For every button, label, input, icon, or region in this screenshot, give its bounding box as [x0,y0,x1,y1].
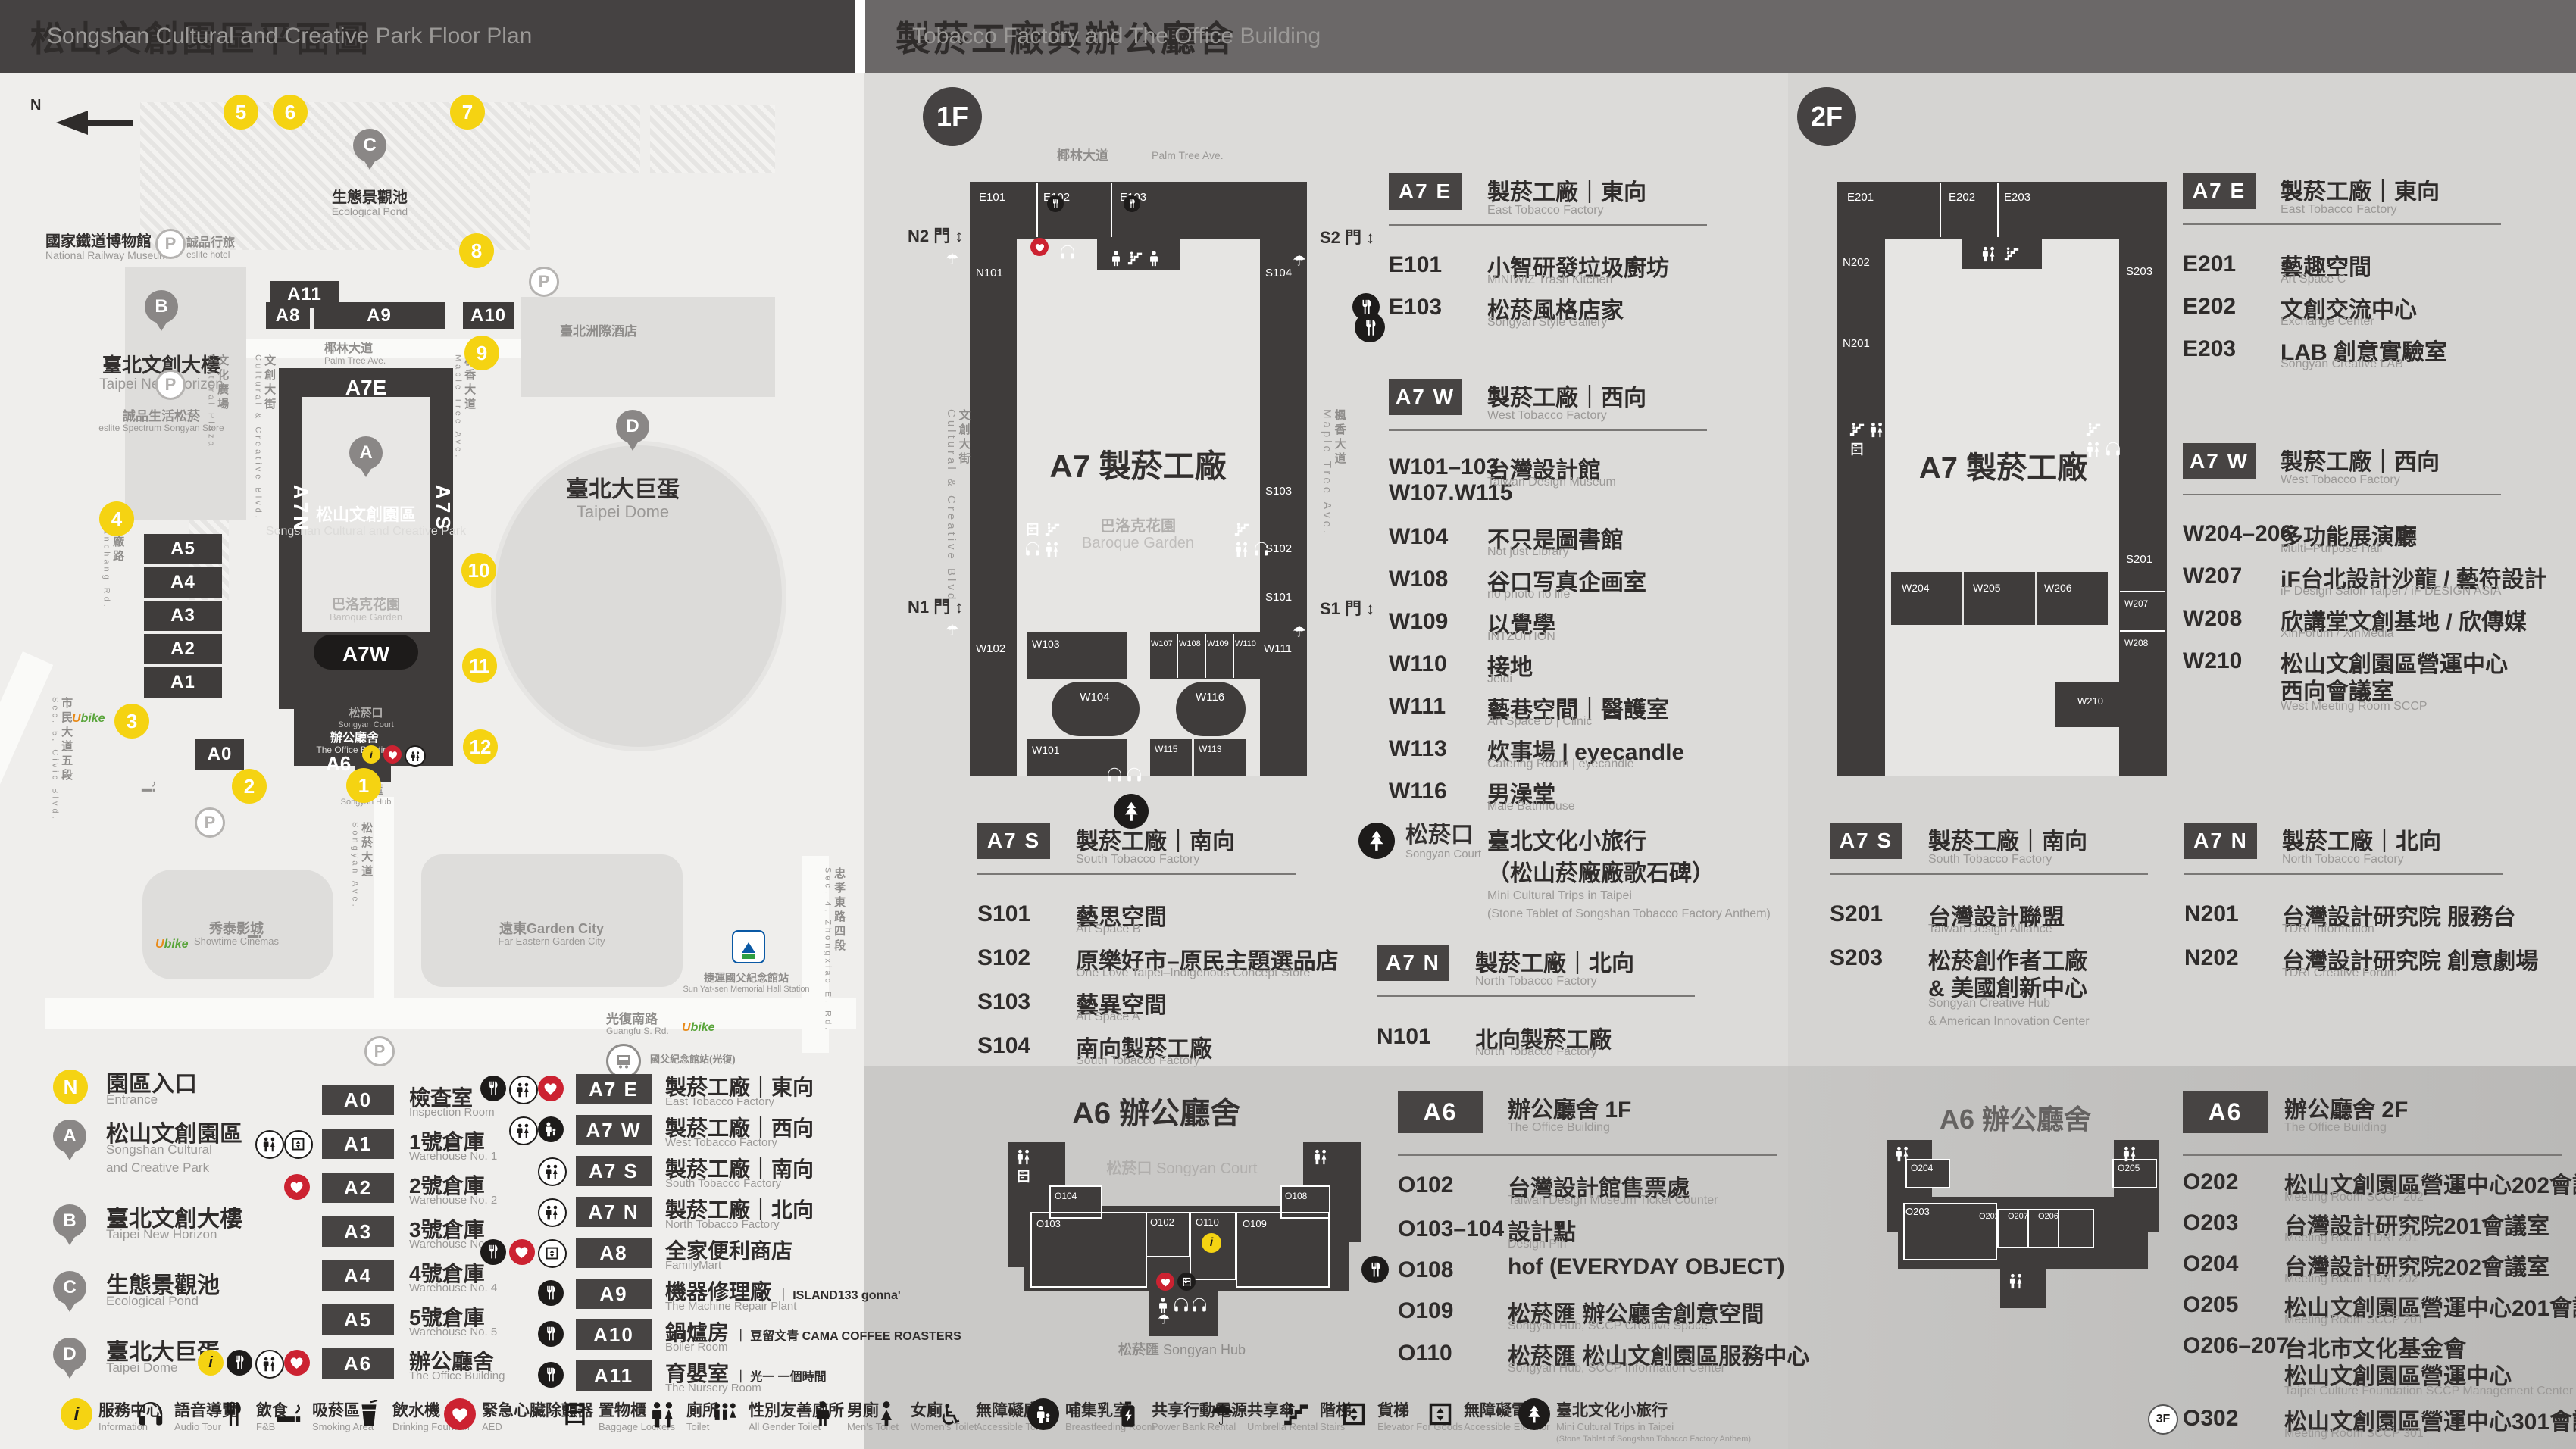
f1-court-desc-zh2: （松山菸廠廠歌石碑） [1487,854,1715,888]
strip-male-icon [809,1400,836,1431]
o-2f-row-O202-name-en: Meeting Room SCCP 202 [2284,1191,2424,1204]
strip-treec-en: Mini Cultural Trips in Taipei [1556,1421,1674,1432]
f2-a7w-row-W207-code[interactable]: W207 [2183,564,2242,589]
f2-a7n-divider [2184,873,2503,875]
o-2f-row-O302-name-en: Meeting Room SCCP 301 [2284,1427,2424,1441]
map-label-捷運國父紀念館站: 捷運國父紀念館站Sun Yat-sen Memorial Hall Statio… [683,973,809,994]
plan1f-room-N101[interactable]: N101 [976,267,1003,279]
map-pin-C[interactable]: C [353,129,386,162]
office1f-room-O108[interactable]: O108 [1285,1191,1307,1201]
legend-col2-A7 N-badge: A7 N [576,1197,652,1227]
office2f-room-O205[interactable]: O205 [2118,1163,2140,1173]
f1-a7w-divider [1389,429,1707,431]
o-1f-title-zh: 辦公廳舍 1F [1508,1091,1631,1124]
office1f-room-O109[interactable]: O109 [1243,1218,1267,1229]
col2-A8-icon-lift [538,1239,567,1268]
songyan-ave-road [374,797,394,1005]
f1-a7e-row-E103-name-en: Songyan Style Gallery [1487,316,1607,329]
f2-a7s-row-S203-name-en: Songyan Creative Hub [1928,997,2050,1010]
map-label-文化廣場: 文化廣場Cultural Plaza [206,354,228,448]
map-label-A6: A6 [326,753,351,775]
legend-col1-A6-en: The Office Building [409,1369,505,1382]
plan2f-room-S203[interactable]: S203 [2126,265,2152,278]
map-label-臺北大巨蛋: 臺北大巨蛋Taipei Dome [566,477,680,521]
legend-place-A-en: Songshan Cultural [106,1142,212,1157]
col2-A7 W-icon-personsOut [509,1116,538,1145]
f1-court-desc-zh1: 臺北文化小旅行 [1487,823,1646,856]
plan2f-room-W205[interactable]: W205 [1973,582,2001,594]
plan-picto-p2-17 [2085,441,2102,457]
map-entrance-7[interactable]: 7 [450,95,485,130]
o-2f-row-O206–207-code[interactable]: O206–207 [2183,1333,2289,1359]
o-1f-badge: A6 [1398,1091,1483,1133]
plan-picto-stairs-8 [1233,521,1250,538]
plan2f-room-W204[interactable]: W204 [1902,582,1930,594]
o-2f-row-O302-code[interactable]: O302 [2183,1406,2238,1432]
map-label-楓香大道: 楓香大道Maple Tree Ave. [453,354,475,460]
plan1f-e102-fork-icon [1047,195,1064,212]
strip-cup-zh: 飲水機 [392,1398,440,1421]
f1-a7w-row-W113-code[interactable]: W113 [1389,736,1447,762]
plan1f-room-S101[interactable]: S101 [1265,591,1292,604]
legend-col1-A2-badge: A2 [322,1173,394,1203]
header-seam [855,0,865,73]
f1-a7e-row-E103-code[interactable]: E103 [1389,295,1442,320]
plan1f-aed-icon [1030,238,1049,256]
f2-a7e-row-E203-name-en: Songyan Creative LAB [2281,358,2403,371]
map-building-A8[interactable]: A8 [266,302,310,329]
f1-a7s-row-S102-code[interactable]: S102 [977,945,1030,971]
f1-a7w-row-W110-code[interactable]: W110 [1389,651,1447,677]
plan-picto-stairs-1 [1127,250,1143,267]
office2f-room-O202[interactable]: O202 [1979,1212,1999,1221]
map-building-A9[interactable]: A9 [314,302,445,329]
map-label-A7S: A7S [432,485,454,532]
plan-picto-stairs-16 [2085,421,2102,438]
o-2f-row-O203-code[interactable]: O203 [2183,1210,2238,1236]
plan2f-room-E201[interactable]: E201 [1847,191,1874,204]
strip-allgender-icon [711,1400,739,1432]
compass-tail [88,120,133,126]
col1-A1-icon-personsOut [255,1130,284,1159]
plan1f-title: A7 製菸工廠 [1049,448,1226,484]
f1-a7n-divider [1377,995,1695,997]
plan-picto-p2-21 [1015,1148,1032,1165]
map-building-A3[interactable]: A3 [144,601,222,631]
o-1f-row-O110-name-en: Songyan Hub, SCCP Information Center [1508,1362,1725,1376]
parking-icon-2: P [155,370,186,400]
f1-a7w-row-W101–103-code[interactable]: W101–103 [1389,454,1499,480]
legend-pin-C: C [53,1271,86,1304]
col1-A6-icon-forkc [227,1350,252,1376]
city-block-ne1 [530,105,640,173]
map-entrance-10[interactable]: 10 [461,553,496,588]
legend-place-D-en: Taipei Dome [106,1360,178,1376]
plan1f-street-left: 文創大街Cultural & Creative Blvd. [944,409,970,608]
f2-a7n-row-N202-name-en: TDRI Creative Forum [2282,967,2397,980]
strip-treec-icon [1518,1398,1550,1430]
o-1f-row-O110-code[interactable]: O110 [1398,1341,1452,1366]
f1-a7n-row-N101-code[interactable]: N101 [1377,1024,1431,1050]
f2-a7s-divider [1830,873,2148,875]
o-1f-row-O108-name-zh[interactable]: hof (EVERYDAY OBJECT) [1508,1254,1785,1280]
office1f-room-O104[interactable]: O104 [1055,1191,1077,1201]
plan1f-room-W107[interactable]: W107 [1151,639,1173,648]
parking-icon-1: P [155,229,186,259]
right-header-title-en: Tobacco Factory and The Office Building [912,23,1321,49]
office2f-room-O207[interactable]: O207 [2008,1212,2028,1221]
f2-a7e-title-zh: 製菸工廠｜東向 [2281,173,2440,206]
f2-a7s-row-S201-name-en: Taiwan Design Alliance [1928,923,2052,936]
f1-a7w-row-W111-code[interactable]: W111 [1389,694,1446,720]
plan-picto-p2-7 [1044,541,1061,557]
o-2f-row-O202-code[interactable]: O202 [2183,1170,2238,1195]
map-label-A7W: A7W [342,642,389,666]
office1f-room-O110[interactable]: O110 [1196,1216,1219,1228]
plan-gate-N2 門: N2 門 ↕ [908,227,963,246]
f1-a7s-title-zh: 製菸工廠｜南向 [1076,823,1235,856]
o-2f-row-O204-code[interactable]: O204 [2183,1251,2238,1277]
f2-a7n-row-N201-code[interactable]: N201 [2184,901,2239,927]
map-label-生態景觀池: 生態景觀池Ecological Pond [332,189,408,218]
plan-picto-headset-10 [1253,541,1270,557]
f2-a7s-row-S203-code[interactable]: S203 [1830,945,1883,971]
map-entrance-11[interactable]: 11 [462,648,497,683]
strip-locker-zh: 置物櫃 [599,1398,646,1421]
legend-col1-A4-badge: A4 [322,1260,394,1291]
legend-col1-A6-badge: A6 [322,1348,394,1379]
legend-place-C-en: Ecological Pond [106,1294,199,1309]
f2-a7w-row-W208-name-en: XinForum / XinMedia [2281,627,2393,641]
o-2f-divider [2183,1154,2562,1156]
left-header-title-en: Songshan Cultural and Creative Park Floo… [47,23,532,49]
office2f-room-O204[interactable]: O204 [1911,1163,1933,1173]
f2-a7w-title-en: West Tobacco Factory [2281,473,2400,487]
legend-col2-A8-en: FamilyMart [665,1259,721,1272]
map-a6-aed-icon [383,745,402,764]
f1-a7w-row-W104-code[interactable]: W104 [1389,524,1448,550]
f1-court-desc-en1: Mini Cultural Trips in Taipei [1487,889,1632,903]
f2-a7n-title-en: North Tobacco Factory [2282,853,2404,867]
ubike-icon-1: Ubike [72,712,105,726]
plan-picto-locker-4 [1024,521,1041,538]
strip-treec-zh: 臺北文化小旅行 [1556,1398,1668,1421]
plan-picto-headset-25 [1173,1297,1190,1313]
f2-a7w-row-W210-name-en: West Meeting Room SCCP [2281,700,2428,714]
map-label-A7N: A7N [289,485,311,533]
legend-pin-B: B [53,1204,86,1238]
f1-a7w-row-W108-name-en: no photo no life [1487,588,1570,601]
plan-picto-locker-22 [1015,1168,1032,1185]
plan-picto-headset-26 [1191,1297,1208,1313]
map-label-國家鐵道博物館: 國家鐵道博物館National Railway Museum [45,233,168,262]
legend-col1-A3-badge: A3 [322,1216,394,1247]
f2-a7s-row-S201-code[interactable]: S201 [1830,901,1883,927]
f1-a7w-row-W108-code[interactable]: W108 [1389,567,1448,592]
col2-A7 N-icon-personsOut [538,1198,567,1227]
plan1f-room-W102[interactable]: W102 [976,642,1005,655]
plan-picto-stairs-5 [1044,521,1061,538]
hotel-block [521,297,775,397]
strip-lift-zh: 貨梯 [1377,1398,1409,1421]
map-pin-B[interactable]: B [145,290,178,323]
o-1f-row-O108-code[interactable]: O108 [1398,1257,1453,1283]
plan-picto-p1-24 [1155,1297,1171,1313]
plan-picto-p2-29 [2008,1273,2024,1289]
f1-a7s-divider [977,873,1296,875]
office1f-room-O103[interactable]: O103 [1036,1218,1061,1229]
o-1f-row-O108-icon [1361,1256,1389,1283]
map-label-臺北洲際酒店: 臺北洲際酒店 [560,324,637,339]
compass-north-label: N [30,97,41,114]
map-label-光復南路: 光復南路Guangfu S. Rd. [606,1012,669,1036]
map-building-A1[interactable]: A1 [144,667,222,698]
f1-a7w-row-W109-code[interactable]: W109 [1389,609,1448,635]
office1f-room-O102[interactable]: O102 [1150,1216,1174,1228]
strip-aed-en: AED [482,1421,502,1432]
legend-col1-A5-en: Warehouse No. 5 [409,1326,497,1338]
f1-a7s-row-S104-code[interactable]: S104 [977,1033,1030,1059]
col2-A8-icon-forkc [480,1239,506,1265]
map-a6-toilet-icon [405,745,426,767]
plan1f-room-W101[interactable]: W101 [1032,744,1060,756]
legend-col1-A0-badge: A0 [322,1085,394,1115]
plan2f-title: A7 製菸工廠 [1919,451,2087,486]
gate-umbrella-icon-4: ☂ [1293,623,1306,642]
f1-a7e-row-E103-icon [1352,293,1380,320]
map-entrance-12[interactable]: 12 [463,729,498,764]
plan2f-room-N201[interactable]: N201 [1843,337,1870,350]
legend-col2-A10-en: Boiler Room [665,1341,728,1354]
f1-a7e-title-en: East Tobacco Factory [1487,204,1604,217]
map-pin-A[interactable]: A [349,436,383,470]
legend-col1-A4-en: Warehouse No. 4 [409,1282,497,1294]
plan1f-room-W116[interactable]: W116 [1196,691,1224,704]
col1-A6-icon-personsOut [255,1350,284,1379]
f2-a7w-row-W204–206-name-en: Multi–Purpose Hall [2281,542,2382,556]
f2-a7n-title-zh: 製菸工廠｜北向 [2282,823,2441,856]
f1-a7w-row-W116-name-en: Male Bathhouse [1487,800,1575,814]
o-2f-row-O205-code[interactable]: O205 [2183,1292,2238,1318]
f2-a7e-row-E201-code[interactable]: E201 [2183,251,2236,277]
map-label-誠品生活松菸: 誠品生活松菸eslite Spectrum Songyan Store [98,409,224,433]
office1f-umbrella-icon: ☂ [1158,1312,1170,1328]
strip-stairs-icon [1282,1400,1311,1432]
strip-fork-en: F&B [256,1421,275,1432]
map-label-椰林大道: 椰林大道Palm Tree Ave. [324,342,386,366]
map-a6-info-icon: i [362,745,380,764]
f1-court-title: 松菸口Songyan Court [1405,823,1481,860]
plan-picto-headset-12 [1126,767,1143,783]
plan1f-room-W115[interactable]: W115 [1155,744,1177,754]
legend-place-N-en: Entrance [106,1092,158,1107]
map-pin-D[interactable]: D [616,410,649,443]
floor1-badge: 1F [923,87,982,146]
guangfu-road [45,998,856,1029]
plan2f-room-W208[interactable]: W208 [2124,638,2148,648]
strip-babyc-icon [1027,1398,1059,1430]
f1-a7s-badge: A7 S [977,823,1050,859]
o-1f-row-O109-code[interactable]: O109 [1398,1298,1453,1324]
f1-a7w-row-W116-code[interactable]: W116 [1389,779,1447,804]
map-entrance-9[interactable]: 9 [464,336,499,370]
strip-cup-icon [355,1400,383,1432]
f2-a7s-title-en: South Tobacco Factory [1928,853,2052,867]
f2-a7s-badge: A7 S [1830,823,1902,859]
f2-a7e-row-E203-code[interactable]: E203 [2183,336,2236,362]
plan1f-room-S104[interactable]: S104 [1265,267,1292,279]
f1-a7s-row-S103-code[interactable]: S103 [977,989,1030,1015]
plan-picto-p2-9 [1233,541,1250,557]
map-entrance-5[interactable]: 5 [224,95,258,130]
f1-a7s-row-S101-code[interactable]: S101 [977,901,1030,927]
col2-A7 E-icon-aed [538,1076,564,1101]
map-entrance-4[interactable]: 4 [99,501,134,536]
legend-col1-A0-en: Inspection Room [409,1106,495,1119]
plan2f-room-W210[interactable]: W210 [2077,695,2103,707]
map-entrance-1[interactable]: 1 [346,768,381,803]
f1-a7e-title-zh: 製菸工廠｜東向 [1487,173,1646,207]
col2-A8-icon-aed [509,1239,535,1265]
f1-a7e-badge: A7 E [1389,173,1462,210]
plan2f-room-S201[interactable]: S201 [2126,553,2152,566]
col2-A7 W-icon-baby [538,1116,564,1142]
legend-col2-A7 S-en: South Tobacco Factory [665,1177,781,1190]
col2-A10-icon-forkc [538,1321,564,1347]
f2-a7w-row-W210-code[interactable]: W210 [2183,648,2242,674]
plan1f-room-W104[interactable]: W104 [1080,691,1109,704]
f2-a7w-row-W207-name-en: iF Design Salon Taipei / iF DESIGN ASIA [2281,585,2501,598]
plan-picto-headset-18 [2105,441,2121,457]
col2-A7 S-icon-personsOut [538,1157,567,1186]
f1-a7e-row-E101-code[interactable]: E101 [1389,252,1442,278]
office1f-aed-icon [1156,1273,1174,1291]
o-2f-row-O206–207-name-en: Taipei Culture Foundation SCCP Managemen… [2284,1385,2573,1398]
plan-picto-p2-23 [1312,1148,1329,1165]
plan1f-room-W113[interactable]: W113 [1199,744,1221,754]
city-block-ne2 [650,105,775,173]
f2-a7s-title-zh: 製菸工廠｜南向 [1928,823,2087,856]
legend-col2-A7 N-en: North Tobacco Factory [665,1218,780,1231]
ubike-icon-3: Ubike [682,1021,715,1035]
legend-pin-A: A [53,1120,86,1153]
f2-a7e-row-E202-code[interactable]: E202 [2183,294,2236,320]
plan2f-room-W206[interactable]: W206 [2044,582,2072,594]
strip-female-icon [873,1400,900,1431]
plan1f-room-W110[interactable]: W110 [1235,639,1256,648]
floor2-badge: 2F [1797,87,1856,146]
map-entrance-2[interactable]: 2 [232,769,267,804]
strip-lift-icon [1340,1400,1368,1432]
map-entrance-8[interactable]: 8 [459,233,494,268]
plan1f-room-W108[interactable]: W108 [1179,639,1201,648]
strip-locker-icon [561,1400,589,1432]
map-label-誠品行旅: 誠品行旅eslite hotel [186,236,235,260]
o-2f-row-O203-name-en: Meeting Room TDRI 201 [2284,1232,2418,1245]
f1-a7w-row-W104-name-en: Not just Library [1487,545,1569,559]
plan2f-room-E202[interactable]: E202 [1949,191,1975,204]
f1-a7w-title-en: West Tobacco Factory [1487,409,1607,423]
map-label-A7E: A7E [345,376,386,399]
plan-picto-stairs-13 [1849,421,1865,438]
legend-col2-A11-badge: A11 [576,1360,652,1391]
plan-picto-p2-14 [1868,421,1885,438]
map-building-A10[interactable]: A10 [463,302,514,329]
plan1f-room-E101[interactable]: E101 [979,191,1005,204]
f2-a7n-badge: A7 N [2184,823,2257,859]
map-label-松菸大道: 松菸大道Songyan Ave. [350,822,372,910]
map-building-A2[interactable]: A2 [144,634,222,664]
plan2f-room-E203[interactable]: E203 [2004,191,2030,204]
map-entrance-3[interactable]: 3 [114,704,149,739]
legend-col2-A7 E-badge: A7 E [576,1074,652,1104]
office2f-plan-title: A6 辦公廳舍 [1940,1104,2091,1135]
f1-a7n-title-en: North Tobacco Factory [1475,975,1597,988]
o-1f-row-O102-name-en: Taiwan Design Museum Ticket Counter [1508,1194,1718,1207]
legend-entrance-badge: N [53,1070,88,1104]
o-2f-row-O205-name-en: Meeting Room SCCP 201 [2284,1313,2424,1327]
map-building-A0[interactable]: A0 [195,739,244,770]
gate-umbrella-icon-3: ☂ [946,621,959,640]
map-building-A5[interactable]: A5 [144,534,222,564]
plan1f-e103-fork-icon [1124,195,1140,212]
map-label-遠東Garden City: 遠東Garden CityFar Eastern Garden City [499,921,605,948]
plan1f-room-W109[interactable]: W109 [1207,639,1229,648]
f1-a7w-badge: A7 W [1389,379,1462,415]
map-label-國父紀念館站(光復): 國父紀念館站(光復) [650,1054,736,1066]
f2-a7w-row-W204–206-code[interactable]: W204–206 [2183,521,2293,547]
plan1f-garden: 巴洛克花園Baroque Garden [1082,518,1194,552]
strip-info-icon: i [61,1398,92,1430]
plan2f-room-N202[interactable]: N202 [1843,256,1870,269]
o-1f-row-O103–104-code[interactable]: O103–104 [1398,1216,1504,1242]
col1-A2-icon-aed [284,1174,310,1200]
plan1f-room-W111[interactable]: W111 [1264,642,1292,655]
f2-a7n-row-N202-code[interactable]: N202 [2184,945,2239,971]
strip-power-icon [1114,1400,1143,1432]
map-entrance-6[interactable]: 6 [273,95,308,130]
office2f-room-O206[interactable]: O206 [2038,1212,2059,1221]
legend-col2-A7 E-en: East Tobacco Factory [665,1095,774,1108]
f1-a7s-row-S103-name-en: Art Space A [1076,1010,1140,1024]
legend-col2-A7 W-en: West Tobacco Factory [665,1136,777,1149]
col2-A11-icon-forkc [538,1362,564,1388]
f2-a7n-row-N201-name-en: TDRI Information [2282,923,2374,936]
f2-a7e-badge: A7 E [2183,173,2256,209]
parking-icon-3: P [529,267,559,297]
o-2f-title-zh: 辦公廳舍 2F [2284,1091,2408,1124]
o-1f-row-O102-code[interactable]: O102 [1398,1173,1453,1198]
f1-a7w-row-W110-name-en: Jeidi [1487,673,1512,686]
f2-a7w-row-W208-code[interactable]: W208 [2183,606,2242,632]
office2f-room-O203[interactable]: O203 [1905,1206,1930,1217]
strip-treec-en2: (Stone Tablet of Songshan Tobacco Factor… [1556,1435,1751,1444]
plan1f-room-W103[interactable]: W103 [1032,638,1060,650]
col1-A1-icon-lift [284,1130,313,1159]
map-building-A4[interactable]: A4 [144,567,222,598]
legend-place-B-en: Taipei New Horizon [106,1227,217,1242]
f2-a7w-title-zh: 製菸工廠｜西向 [2281,443,2440,476]
plan1f-room-S103[interactable]: S103 [1265,485,1292,498]
o-2f-row-O302-prefix: 3F [2148,1404,2178,1435]
gate-umbrella-icon-2: ☂ [1293,251,1306,270]
plan2f-room-W207[interactable]: W207 [2124,598,2148,609]
map-label-秀泰影城: 秀泰影城Showtime Cinemas [194,921,279,948]
legend-place-A-en2: and Creative Park [106,1160,209,1176]
strip-persons-en: Toilet [686,1421,709,1432]
plan-gate-N1 門: N1 門 ↕ [908,598,963,617]
f1-court-tree-icon [1358,823,1395,859]
